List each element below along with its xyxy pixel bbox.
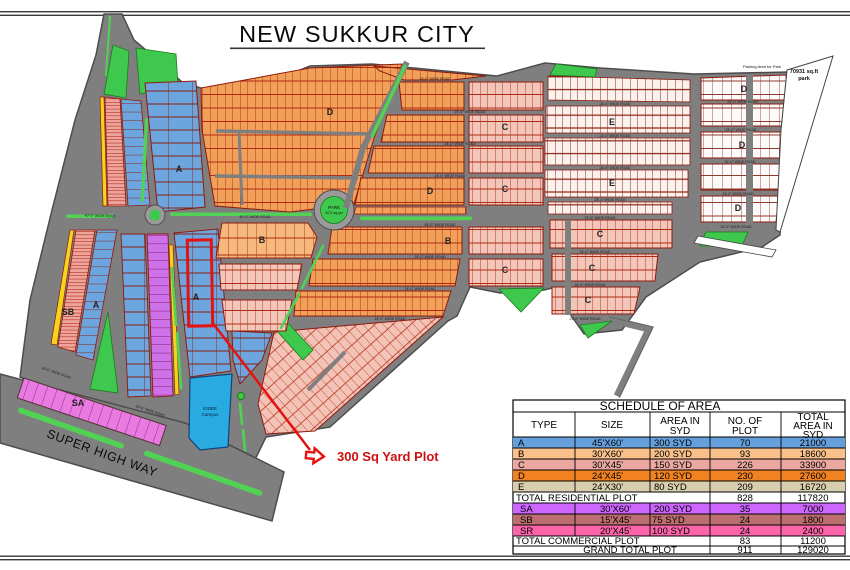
svg-text:24'-0" WIDE ROAD: 24'-0" WIDE ROAD bbox=[600, 166, 631, 170]
svg-text:D: D bbox=[741, 84, 748, 94]
svg-text:Parking Area for Park: Parking Area for Park bbox=[743, 64, 781, 69]
svg-text:24'-0" WIDE ROAD: 24'-0" WIDE ROAD bbox=[728, 100, 759, 104]
svg-text:24'-0" WIDE ROAD: 24'-0" WIDE ROAD bbox=[726, 128, 757, 132]
svg-text:A: A bbox=[93, 300, 100, 310]
svg-text:300 Sq Yard Plot: 300 Sq Yard Plot bbox=[337, 449, 439, 464]
svg-text:TYPE: TYPE bbox=[531, 420, 557, 431]
svg-text:129020: 129020 bbox=[797, 545, 829, 556]
svg-text:1800: 1800 bbox=[802, 515, 823, 526]
svg-text:SYD: SYD bbox=[670, 426, 691, 437]
svg-text:A: A bbox=[176, 164, 183, 174]
svg-text:828: 828 bbox=[737, 493, 753, 504]
svg-text:C: C bbox=[518, 460, 525, 471]
svg-text:30'X45': 30'X45' bbox=[592, 460, 623, 471]
svg-text:70931 sq.ft: 70931 sq.ft bbox=[790, 69, 819, 75]
svg-text:D: D bbox=[735, 203, 742, 213]
svg-text:D: D bbox=[739, 140, 746, 150]
svg-text:80 SYD: 80 SYD bbox=[654, 482, 687, 493]
svg-text:B: B bbox=[518, 449, 524, 460]
svg-text:230: 230 bbox=[737, 471, 753, 482]
svg-text:24'-0" WIDE ROAD: 24'-0" WIDE ROAD bbox=[575, 283, 606, 287]
svg-text:15'X45': 15'X45' bbox=[600, 515, 631, 526]
svg-text:33900: 33900 bbox=[800, 460, 826, 471]
svg-text:C: C bbox=[589, 263, 596, 273]
svg-text:70: 70 bbox=[740, 438, 751, 449]
svg-text:C: C bbox=[502, 184, 509, 194]
svg-text:200 SYD: 200 SYD bbox=[654, 449, 692, 460]
svg-text:24'-0" WIDE ROAD: 24'-0" WIDE ROAD bbox=[435, 174, 466, 178]
svg-text:24'-0" WIDE ROAD: 24'-0" WIDE ROAD bbox=[570, 317, 601, 321]
svg-text:D: D bbox=[518, 471, 525, 482]
svg-text:SA: SA bbox=[520, 504, 533, 515]
svg-text:24'-0" WIDE ROAD: 24'-0" WIDE ROAD bbox=[455, 110, 486, 114]
svg-text:45'X60': 45'X60' bbox=[592, 438, 623, 449]
svg-text:150 SYD: 150 SYD bbox=[654, 460, 692, 471]
svg-text:C: C bbox=[585, 295, 592, 305]
svg-text:SB: SB bbox=[520, 515, 533, 526]
svg-text:117820: 117820 bbox=[798, 493, 829, 504]
svg-text:30'X60': 30'X60' bbox=[592, 449, 623, 460]
svg-text:C: C bbox=[502, 122, 509, 132]
svg-text:18600: 18600 bbox=[800, 449, 826, 460]
svg-text:40'-0" WIDE ROAD: 40'-0" WIDE ROAD bbox=[240, 215, 271, 219]
svg-text:93: 93 bbox=[740, 449, 751, 460]
svg-text:E: E bbox=[609, 178, 615, 188]
svg-text:200 SYD: 200 SYD bbox=[654, 504, 692, 515]
svg-text:SA: SA bbox=[72, 398, 85, 408]
svg-text:24'-0" WIDE ROAD: 24'-0" WIDE ROAD bbox=[600, 134, 631, 138]
svg-text:24'-0" WIDE ROAD: 24'-0" WIDE ROAD bbox=[580, 250, 611, 254]
svg-text:7000: 7000 bbox=[802, 504, 823, 515]
svg-text:226: 226 bbox=[737, 460, 753, 471]
svg-text:24'-0" WIDE ROAD: 24'-0" WIDE ROAD bbox=[723, 192, 754, 196]
svg-text:24: 24 bbox=[740, 515, 751, 526]
svg-text:D: D bbox=[327, 107, 334, 117]
svg-text:24'-0" WIDE ROAD: 24'-0" WIDE ROAD bbox=[405, 287, 436, 291]
svg-text:C: C bbox=[502, 265, 509, 275]
svg-text:24'-0" WIDE ROAD: 24'-0" WIDE ROAD bbox=[600, 102, 631, 106]
svg-text:SIZE: SIZE bbox=[601, 420, 624, 431]
svg-text:GRAND TOTAL PLOT: GRAND TOTAL PLOT bbox=[583, 545, 677, 556]
svg-text:16720: 16720 bbox=[800, 482, 826, 493]
svg-text:B: B bbox=[445, 236, 452, 246]
svg-text:24'-0" WIDE ROAD: 24'-0" WIDE ROAD bbox=[585, 216, 616, 220]
svg-text:21000: 21000 bbox=[800, 438, 826, 449]
svg-text:NEW SUKKUR CITY: NEW SUKKUR CITY bbox=[239, 21, 475, 47]
svg-text:B: B bbox=[259, 235, 266, 245]
svg-text:PLOT: PLOT bbox=[732, 426, 758, 437]
svg-text:E: E bbox=[609, 117, 615, 127]
svg-text:27600: 27600 bbox=[800, 471, 826, 482]
svg-text:SB: SB bbox=[62, 307, 75, 317]
svg-text:75 SYD: 75 SYD bbox=[652, 515, 685, 526]
svg-text:Campus: Campus bbox=[202, 412, 220, 417]
svg-text:24'-0" WIDE ROAD: 24'-0" WIDE ROAD bbox=[420, 77, 451, 81]
svg-text:SCHEDULE OF AREA: SCHEDULE OF AREA bbox=[600, 399, 721, 413]
svg-text:872 sq.yd: 872 sq.yd bbox=[325, 210, 342, 215]
svg-text:911: 911 bbox=[737, 545, 752, 556]
svg-text:28'-0" WIDE ROAD: 28'-0" WIDE ROAD bbox=[595, 198, 626, 202]
svg-text:E: E bbox=[518, 482, 524, 493]
svg-text:24'X30': 24'X30' bbox=[592, 482, 623, 493]
svg-text:TOTAL RESIDENTIAL PLOT: TOTAL RESIDENTIAL PLOT bbox=[516, 493, 638, 504]
svg-text:24'-0" WIDE ROAD: 24'-0" WIDE ROAD bbox=[445, 142, 476, 146]
svg-text:300 SYD: 300 SYD bbox=[654, 438, 692, 449]
svg-text:100 SYD: 100 SYD bbox=[652, 526, 690, 537]
svg-text:24'-0" WIDE ROAD: 24'-0" WIDE ROAD bbox=[375, 317, 406, 321]
svg-text:120 SYD: 120 SYD bbox=[654, 471, 692, 482]
svg-text:209: 209 bbox=[737, 482, 753, 493]
svg-text:24'-0" WIDE ROAD: 24'-0" WIDE ROAD bbox=[721, 225, 752, 229]
svg-text:24'-0" WIDE ROAD: 24'-0" WIDE ROAD bbox=[725, 160, 756, 164]
svg-text:35: 35 bbox=[740, 504, 751, 515]
svg-text:A: A bbox=[193, 292, 200, 302]
svg-text:D: D bbox=[427, 186, 434, 196]
svg-text:24'-0" WIDE ROAD: 24'-0" WIDE ROAD bbox=[415, 255, 446, 259]
svg-text:48'-0" WIDE ROAD: 48'-0" WIDE ROAD bbox=[425, 223, 456, 227]
svg-text:30'X60': 30'X60' bbox=[600, 504, 631, 515]
svg-text:24'X45': 24'X45' bbox=[592, 471, 623, 482]
svg-text:C: C bbox=[597, 229, 604, 239]
svg-text:IODEE: IODEE bbox=[203, 406, 217, 411]
svg-text:A: A bbox=[518, 438, 525, 449]
svg-text:park: park bbox=[798, 76, 811, 82]
